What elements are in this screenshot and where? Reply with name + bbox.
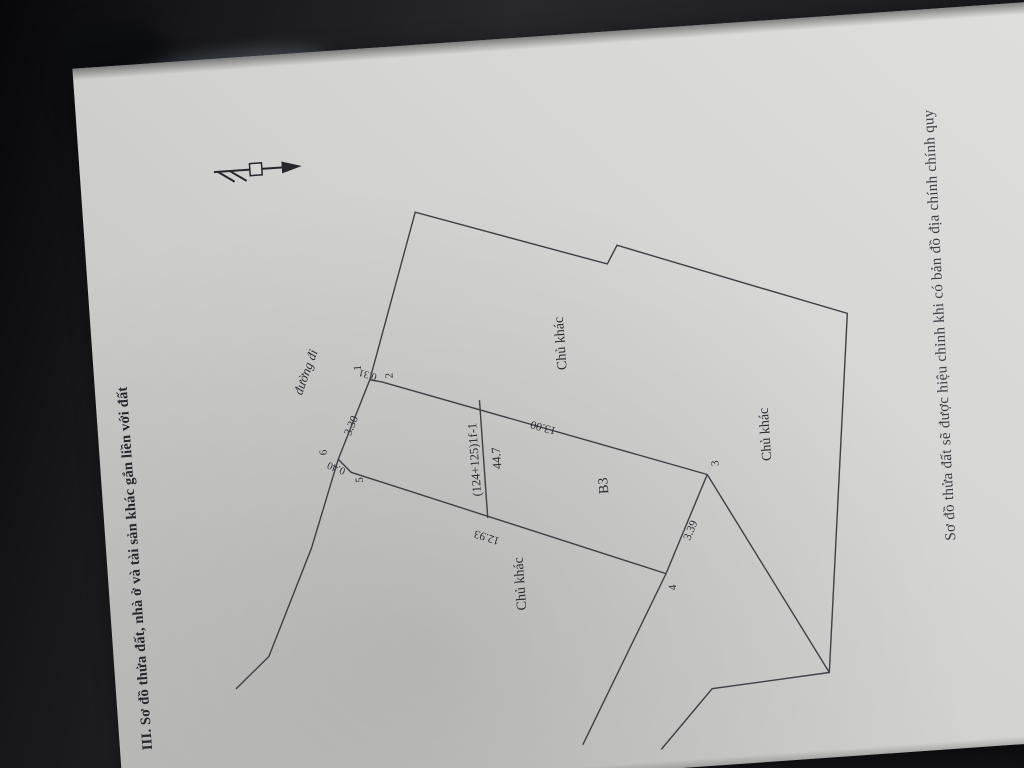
plot-outer-boundary bbox=[204, 183, 877, 768]
neighbor-label-left: Chủ khác bbox=[512, 557, 531, 611]
vertex-1: 1 bbox=[352, 365, 364, 371]
vertex-3: 3 bbox=[709, 459, 721, 466]
document-page: III. Sơ đồ thửa đất, nhà ở và tài sản kh… bbox=[72, 0, 1024, 768]
vertex-6: 6 bbox=[318, 449, 330, 456]
edge-length-right: 13.00 bbox=[529, 418, 557, 437]
edge-length-road: 3.30 bbox=[342, 414, 361, 437]
vertex-2: 2 bbox=[383, 373, 395, 379]
edge-length-bottom: 3.39 bbox=[682, 519, 701, 542]
neighbor-divider-bottom bbox=[707, 467, 829, 680]
edge-length-left: 12.93 bbox=[473, 527, 502, 546]
road-label: đường đi bbox=[290, 347, 320, 397]
neighbor-label-right: Chủ khác bbox=[552, 316, 571, 370]
photo-scene: III. Sơ đồ thửa đất, nhà ở và tài sản kh… bbox=[0, 0, 1024, 768]
parcel-block-label: B3 bbox=[596, 477, 612, 494]
neighbor-divider-left bbox=[571, 574, 677, 745]
parcel-area: 44.7 bbox=[489, 447, 504, 470]
vertex-5: 5 bbox=[354, 476, 366, 483]
neighbor-label-bottom: Chủ khác bbox=[757, 407, 776, 461]
edge-length-v5-v6: 0.40 bbox=[326, 459, 347, 476]
cadastral-diagram: đường đi 3.30 0.31 0.40 12.93 13.00 3.39… bbox=[72, 0, 1024, 768]
vertex-4: 4 bbox=[667, 584, 679, 591]
